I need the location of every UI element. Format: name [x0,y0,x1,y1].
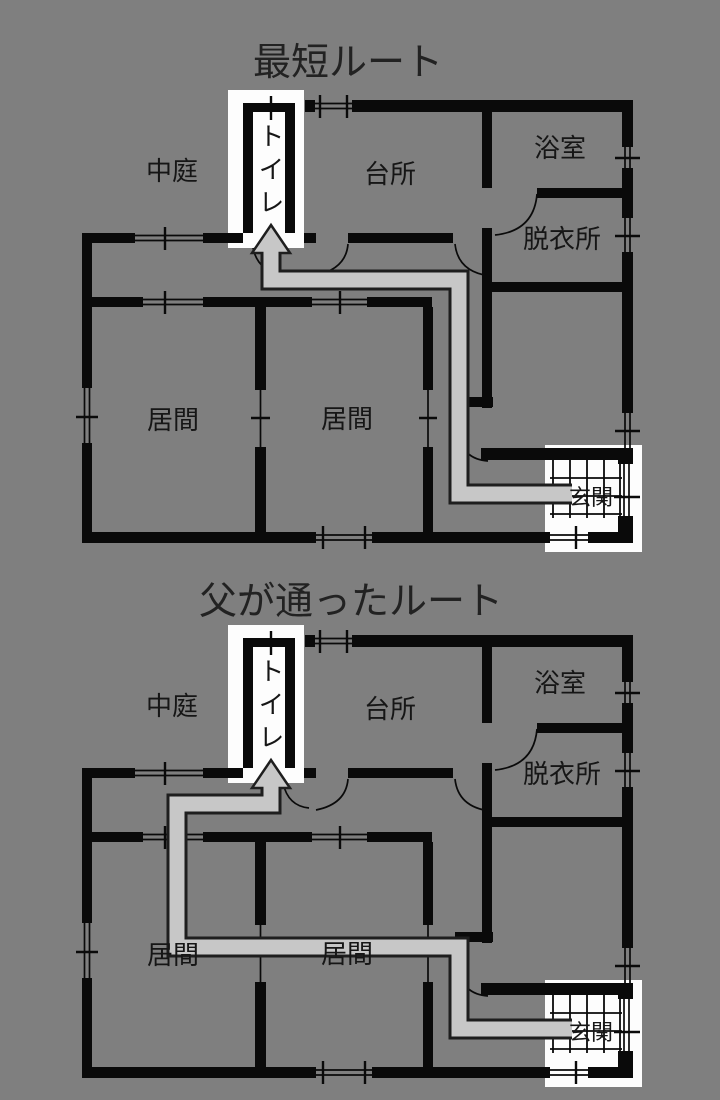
room-label-entrance-2: 玄関 [569,1022,613,1044]
room-label-dressing-1: 脱衣所 [523,227,601,253]
room-label-bath-2: 浴室 [534,671,586,697]
room-label-bath-1: 浴室 [534,136,586,162]
floor-plan-canvas [0,0,720,1100]
room-label-living-right-2: 居間 [321,942,373,968]
room-label-kitchen-2: 台所 [364,697,416,723]
room-label-entrance-1: 玄関 [569,487,613,509]
room-label-living-right-1: 居間 [321,407,373,433]
room-label-toilet-1: トイレ [256,123,282,222]
title-fathers-route: 父が通ったルート [199,583,503,621]
room-label-dressing-2: 脱衣所 [523,762,601,788]
floor-plan-diagram: 最短ルート 父が通ったルート 中庭 トイレ 台所 浴室 脱衣所 居間 居間 玄関… [0,0,720,1100]
room-label-kitchen-1: 台所 [364,162,416,188]
room-label-courtyard-1: 中庭 [146,159,198,185]
title-shortest-route: 最短ルート [253,44,443,82]
room-label-living-left-2: 居間 [147,943,199,969]
room-label-courtyard-2: 中庭 [146,694,198,720]
room-label-toilet-2: トイレ [256,658,282,757]
room-label-living-left-1: 居間 [147,408,199,434]
